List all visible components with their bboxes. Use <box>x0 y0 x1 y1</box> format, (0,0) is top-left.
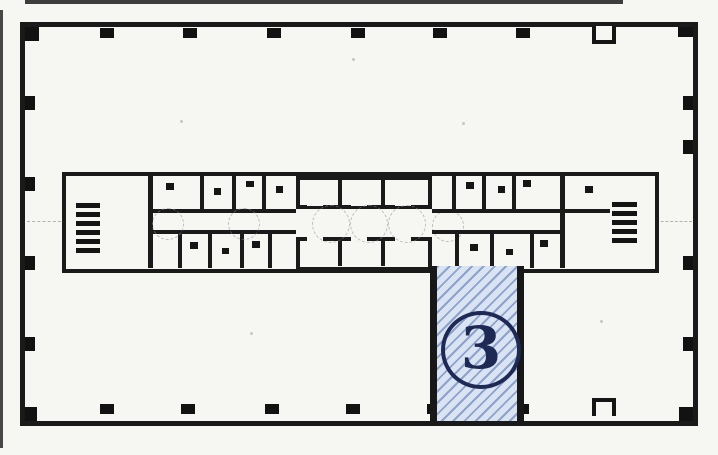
stair-tread <box>76 203 100 208</box>
partition-wall <box>452 176 456 213</box>
partition-wall <box>200 176 204 213</box>
column-mark <box>351 28 365 38</box>
door-swing <box>312 205 350 243</box>
unit-number: 3 <box>461 319 501 377</box>
partition-wall <box>565 209 610 213</box>
scan-speckle <box>462 122 465 125</box>
column-mark <box>683 337 693 351</box>
fixture-mark <box>214 188 221 195</box>
fixture-mark <box>540 240 548 247</box>
partition-wall <box>232 176 236 213</box>
fixture-mark <box>252 241 260 248</box>
centerline-left <box>27 221 61 222</box>
column-mark <box>433 28 447 38</box>
door-swing <box>152 208 184 240</box>
column-mark <box>25 407 37 421</box>
door-swing <box>432 210 464 242</box>
door-swing <box>388 205 426 243</box>
column-mark <box>25 337 35 351</box>
partition-wall <box>490 232 494 268</box>
partition-wall <box>455 232 459 268</box>
scan-speckle <box>250 332 253 335</box>
partition-wall <box>512 176 516 213</box>
column-mark <box>683 140 693 154</box>
partition-wall <box>178 232 182 268</box>
column-mark <box>181 404 195 414</box>
column-mark <box>25 27 39 41</box>
column-mark <box>683 256 693 270</box>
scan-speckle <box>180 120 183 123</box>
stair-tread <box>76 212 100 217</box>
column-mark <box>25 177 35 191</box>
wall-notch-top <box>592 26 616 44</box>
partition-wall <box>432 230 562 234</box>
door-swing <box>228 208 260 240</box>
fixture-mark <box>470 244 478 251</box>
floor-plan: 3 <box>0 0 718 455</box>
fixture-mark <box>166 183 174 190</box>
column-mark <box>25 96 35 110</box>
fixture-mark <box>222 248 229 254</box>
fixture-mark <box>498 186 505 193</box>
fixture-mark <box>466 182 474 189</box>
fixture-mark <box>276 186 283 193</box>
partition-wall <box>262 176 266 213</box>
column-mark <box>267 28 281 38</box>
stair-tread <box>76 230 100 235</box>
stair-tread <box>612 202 637 207</box>
column-mark <box>346 404 360 414</box>
partition-wall <box>432 209 562 213</box>
fixture-mark <box>246 181 254 187</box>
partition-wall <box>530 232 534 268</box>
fixture-mark <box>506 249 513 255</box>
elevator-door-gap <box>307 199 323 206</box>
column-mark <box>683 96 693 110</box>
elevator-divider <box>338 178 342 205</box>
column-mark <box>183 28 197 38</box>
column-mark <box>100 404 114 414</box>
stair-tread <box>612 229 637 234</box>
stair-tread <box>76 248 100 253</box>
elevator-divider <box>381 178 385 205</box>
centerline-right <box>656 221 692 222</box>
column-mark <box>265 404 279 414</box>
column-mark <box>679 407 693 421</box>
fixture-mark <box>523 180 531 187</box>
shaft-wall-left <box>430 266 437 421</box>
door-swing <box>350 205 388 243</box>
stair-right-wall <box>560 172 565 268</box>
partition-wall <box>208 232 212 268</box>
stair-tread <box>76 221 100 226</box>
stair-tread <box>612 220 637 225</box>
fixture-mark <box>190 242 198 249</box>
partition-wall <box>482 176 486 213</box>
column-mark <box>678 27 693 37</box>
fixture-mark <box>585 186 593 193</box>
scan-speckle <box>352 58 355 61</box>
elevator-divider <box>381 239 385 266</box>
partition-wall <box>268 232 272 268</box>
scan-artifact-top <box>25 0 623 4</box>
unit-circle-badge: 3 <box>441 311 521 389</box>
column-mark <box>25 256 35 270</box>
scan-artifact-left <box>0 10 3 448</box>
column-mark <box>516 28 530 38</box>
wall-notch-bottom <box>592 398 616 416</box>
column-mark <box>100 28 114 38</box>
stair-tread <box>612 211 637 216</box>
stair-tread <box>612 238 637 243</box>
elevator-divider <box>338 239 342 266</box>
stair-tread <box>76 239 100 244</box>
scan-speckle <box>600 320 603 323</box>
